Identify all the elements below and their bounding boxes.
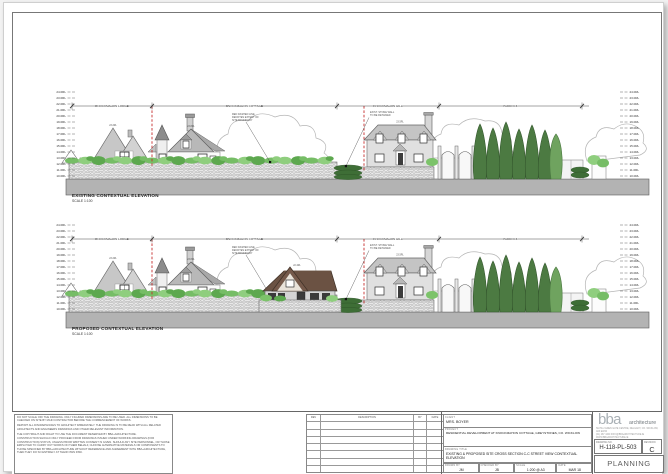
- drawing-title-value: EXISTING & PROPOSED SITE CROSS SECTION C…: [446, 452, 590, 461]
- date-field: DATE MAR 18: [556, 462, 592, 473]
- revision-table-row: [307, 430, 443, 437]
- note-paragraph: CONSTRUCTION SHOULD ONLY PROCEED FROM DR…: [17, 437, 170, 454]
- scale-label: SCALE: [516, 464, 525, 467]
- drawn-by-field: DRAWN BY JM: [443, 462, 479, 473]
- drawing-title-label: DRAWING TITLE: [445, 448, 467, 451]
- paper-sheet: 24.0RL24.0RL23.0RL23.0RL22.0RL22.0RL21.0…: [3, 2, 664, 472]
- client-value: MRS. BOYER: [446, 420, 590, 424]
- drawing-number-value: H-118-PL-503: [595, 445, 641, 451]
- proposed-elevation-caption: PROPOSED CONTEXTUAL ELEVATION SCALE 1:10…: [72, 326, 163, 336]
- drawn-by-label: DRAWN BY: [445, 464, 460, 467]
- client-label: CLIENT: [445, 416, 455, 419]
- drawing-title-field: DRAWING TITLE EXISTING & PROPOSED SITE C…: [443, 446, 592, 464]
- firm-logo-suffix: architecture: [629, 420, 656, 426]
- scale-value: 1:200 @ A3: [517, 468, 554, 472]
- architect-logo-block: bba architecture SUITE 2 EDEN GATE CENTR…: [592, 412, 663, 474]
- revision-table-row: [307, 459, 443, 466]
- project-field: PROJECT RESIDENTIAL DEVELOPMENT AT KNOCK…: [443, 427, 592, 448]
- revision-value: C: [643, 445, 661, 454]
- drawn-by-value: JM: [446, 468, 477, 472]
- drawing-number-row: DRAWING NO. H-118-PL-503 REVISION C: [594, 439, 662, 454]
- revision-label: REVISION: [644, 441, 655, 444]
- note-paragraph: REPORT ALL DISCREPANCIES TO ARCHITECT IM…: [17, 424, 170, 431]
- revision-table-row: [307, 444, 443, 451]
- revision-table-row: [307, 451, 443, 458]
- revision-table-row: [307, 422, 443, 429]
- date-label: DATE: [558, 464, 565, 467]
- revision-table: REVDESCRIPTIONBYDATE: [306, 414, 444, 473]
- revision-table-row: [307, 437, 443, 444]
- firm-logo: bba: [598, 411, 621, 428]
- revision-table-header: REVDESCRIPTIONBYDATE: [307, 415, 443, 422]
- planning-drawing-sheet: 24.0RL24.0RL23.0RL23.0RL22.0RL22.0RL21.0…: [0, 0, 668, 474]
- title-block-strip: DO NOT SCALE OFF THE DRAWING. ONLY FIGUR…: [12, 411, 662, 474]
- note-paragraph: THE COPYRIGHT AND RIGHT TO USE THE DOCUM…: [17, 433, 170, 436]
- checked-by-field: CHECKED BY JB: [479, 462, 515, 473]
- drawing-title-text: PROPOSED CONTEXTUAL ELEVATION: [72, 326, 163, 331]
- revision-field: REVISION C: [642, 439, 662, 454]
- drawing-number-label: DRAWING NO.: [596, 441, 612, 444]
- existing-elevation-drawing: EXISTING CONTEXTUAL ELEVATION SCALE 1:10…: [44, 88, 664, 210]
- drawing-info-block: CLIENT MRS. BOYER PROJECT RESIDENTIAL DE…: [441, 412, 593, 474]
- meta-cells: DRAWN BY JM CHECKED BY JB SCALE 1:200 @ …: [443, 462, 592, 473]
- drawing-scale-text: SCALE 1:100: [72, 199, 159, 203]
- date-value: MAR 18: [559, 468, 590, 472]
- existing-elevation-caption: EXISTING CONTEXTUAL ELEVATION SCALE 1:10…: [72, 193, 159, 203]
- revision-table-row: [307, 466, 443, 472]
- scale-field: SCALE 1:200 @ A3: [514, 462, 556, 473]
- checked-by-value: JB: [482, 468, 513, 472]
- project-value: RESIDENTIAL DEVELOPMENT AT KNOCKMAHON CO…: [446, 432, 590, 436]
- drawing-title-text: EXISTING CONTEXTUAL ELEVATION: [72, 193, 159, 198]
- drawing-number-field: DRAWING NO. H-118-PL-503: [594, 439, 642, 454]
- drawing-scale-text: SCALE 1:100: [72, 332, 163, 336]
- general-notes: DO NOT SCALE OFF THE DRAWING. ONLY FIGUR…: [14, 414, 173, 474]
- issue-status-box: PLANNING ISSUE: [594, 455, 664, 473]
- checked-by-label: CHECKED BY: [481, 464, 499, 467]
- proposed-elevation-drawing: PROPOSED CONTEXTUAL ELEVATION SCALE 1:10…: [44, 221, 664, 343]
- issue-status-text: PLANNING ISSUE: [595, 456, 663, 474]
- note-paragraph: DO NOT SCALE OFF THE DRAWING. ONLY FIGUR…: [17, 416, 170, 423]
